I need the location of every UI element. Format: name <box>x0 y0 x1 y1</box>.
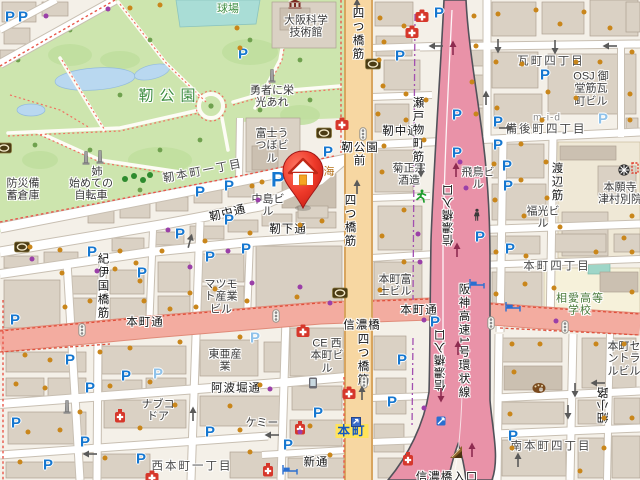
street-honmachidori-w: 本町通 <box>126 317 164 330</box>
poi-dot-purple <box>95 269 100 274</box>
signal-icon <box>487 316 495 330</box>
poi-dot-orange <box>472 14 477 19</box>
oneway-arrow-icon <box>602 42 618 50</box>
oneway-arrow-icon <box>494 38 502 54</box>
parking-icon: P <box>387 395 397 410</box>
hospital-icon <box>405 25 420 39</box>
bed-icon <box>505 302 522 313</box>
street-setomonocho-suji: 瀬戸物町筋 <box>411 96 424 164</box>
parking-icon: P <box>43 458 53 473</box>
poi-dot-orange <box>523 282 528 287</box>
poi-dot-orange <box>494 60 499 65</box>
bldg-toa: 東亜産 業 <box>209 349 242 374</box>
poi-dot-orange <box>494 292 499 297</box>
poi-dot-orange <box>23 353 28 358</box>
monument-icon <box>63 400 72 415</box>
poi-dot-orange <box>382 144 387 149</box>
parking-icon-light: P <box>153 367 163 382</box>
oneway-arrow-icon <box>449 40 457 56</box>
poi-dot-orange <box>404 118 409 123</box>
poi-dot-purple <box>298 285 303 290</box>
poi-dot-orange <box>402 24 407 29</box>
poi-dot-orange <box>18 460 23 465</box>
poi-dot-orange <box>524 254 529 259</box>
oneway-arrow-icon <box>498 124 514 132</box>
poi-dot-purple <box>554 319 559 324</box>
poi-dot-orange <box>492 162 497 167</box>
pharmacy-icon <box>114 409 126 423</box>
poi-dot-orange <box>470 80 475 85</box>
poi-dot-orange <box>138 426 143 431</box>
street-watanabesuji: 渡辺筋 <box>550 162 563 203</box>
person-icon <box>473 209 482 222</box>
poi-dot-orange <box>258 383 263 388</box>
poi-dot-orange <box>558 225 563 230</box>
district-minamihonmachi: 南本町四丁目 <box>511 441 592 454</box>
parking-icon: P <box>121 369 131 384</box>
bldg-honmachi-fuji: 本町富 士ビル <box>379 274 412 299</box>
monument-icon <box>82 151 91 166</box>
poi-dot-orange <box>628 118 633 123</box>
poi-dot-orange <box>622 236 627 241</box>
poi-dot-orange <box>48 358 53 363</box>
poi-dot-orange <box>582 10 587 15</box>
parking-icon: P <box>452 146 462 161</box>
parking-icon: P <box>80 435 90 450</box>
poi-dot-orange <box>630 416 635 421</box>
district-bingomachi: 備後町四丁目 <box>506 124 587 137</box>
poi-dot-orange <box>522 214 527 219</box>
poi-dot-orange <box>308 424 313 429</box>
poi-dot-orange <box>474 112 479 117</box>
poi-dot-purple <box>226 249 231 254</box>
bldg-fukumitsu: 福光ビ ル <box>527 206 560 231</box>
poi-dot-orange <box>98 350 103 355</box>
oneway-arrow-icon <box>437 387 445 403</box>
street-yotsubashisuji-mid: 四つ橋筋 <box>343 194 356 248</box>
street-yotsubashisuji-top: 四つ橋筋 <box>351 7 364 61</box>
map-canvas[interactable]: 靭公園球場大阪科学 技術館勇者に栄 光あれ姉始めての 自転車防災備 蓄倉庫靭本町… <box>0 0 640 480</box>
poi-honganji: 本願寺 津村別院 <box>598 182 640 207</box>
street-shintori: 新通 <box>304 457 329 470</box>
poi-dot-orange <box>245 299 250 304</box>
parking-icon: P <box>224 179 234 194</box>
poi-dot-orange <box>108 384 113 389</box>
poi-dot-orange <box>630 290 635 295</box>
phone-icon <box>309 377 318 389</box>
poi-dot-purple <box>268 387 273 392</box>
signal-icon <box>359 127 367 141</box>
parking-icon-light: P <box>250 331 260 346</box>
oneway-arrow-icon <box>82 450 98 458</box>
oneway-arrow-icon <box>590 379 606 387</box>
parking-icon: P <box>136 452 146 467</box>
hospital-icon <box>415 9 430 23</box>
museum-label: 大阪科学 技術館 <box>284 15 328 40</box>
poi-dot-orange <box>376 112 381 117</box>
hospital-icon <box>296 324 311 338</box>
poi-dot-purple <box>418 260 423 265</box>
hospital-icon <box>342 386 357 400</box>
parking-icon: P <box>241 242 251 257</box>
poi-dot-orange <box>295 295 300 300</box>
bed-icon <box>282 465 299 476</box>
ramp-shinanobashi-3: 信濃橋入口 <box>416 472 479 480</box>
poi-dot-orange <box>538 342 543 347</box>
poi-dot-orange <box>519 142 524 147</box>
poi-dot-orange <box>128 346 133 351</box>
parking-icon: P <box>18 10 28 25</box>
poi-dot-orange <box>574 96 579 101</box>
poi-dot-orange <box>382 40 387 45</box>
poi-dot-orange <box>519 178 524 183</box>
poi-dot-orange <box>88 299 93 304</box>
parking-icon: P <box>397 353 407 368</box>
poi-dot-orange <box>602 446 607 451</box>
ballfield-label: 球場 <box>217 3 239 15</box>
poi-dot-orange <box>138 279 143 284</box>
parking-icon: P <box>10 313 20 328</box>
subway-icon <box>351 417 361 427</box>
parking-icon-light: P <box>598 112 608 127</box>
poi-dot-orange <box>494 250 499 255</box>
poi-dot-orange <box>402 208 407 213</box>
poi-dot-orange <box>510 446 515 451</box>
poi-dot-orange <box>134 261 139 266</box>
poi-dot-orange <box>142 299 147 304</box>
school-soai: 相愛高等 学校 <box>556 293 604 318</box>
oneway-arrow-icon <box>514 452 522 468</box>
poi-dot-orange <box>328 453 333 458</box>
parking-icon: P <box>175 227 185 242</box>
poi-dot-orange <box>598 60 603 65</box>
parking-icon: P <box>452 108 462 123</box>
poi-dot-orange <box>512 370 517 375</box>
monument-icon <box>96 150 105 165</box>
poi-dot-orange <box>474 44 479 49</box>
poi-dot-orange <box>203 239 208 244</box>
poi-dot-orange <box>238 46 243 51</box>
oneway-arrow-icon <box>482 90 490 106</box>
poi-dot-orange <box>58 428 63 433</box>
poi-dot-orange <box>128 6 133 11</box>
bldg-osj-midosuji: OSJ 御 堂筋瓦 町ビル <box>573 71 608 108</box>
palette-icon <box>532 383 546 394</box>
parking-icon: P <box>11 416 21 431</box>
parking-icon: P <box>503 179 513 194</box>
poi-dot-orange <box>178 340 183 345</box>
poi-dot-purple <box>250 281 255 286</box>
parking-icon: P <box>313 406 323 421</box>
poi-dot-orange <box>578 469 583 474</box>
parking-icon: P <box>5 10 15 25</box>
signal-icon <box>272 309 280 323</box>
poi-dot-orange <box>58 248 63 253</box>
parking-icon: P <box>434 6 444 21</box>
poi-dot-purple <box>256 198 261 203</box>
ramp-shinanobashi-2: 信濃橋入口 <box>435 329 448 392</box>
poi-dot-orange <box>26 430 31 435</box>
poi-dot-orange <box>630 214 635 219</box>
bosai-label: 防災備 蓄倉庫 <box>7 178 40 203</box>
oneway-arrow-icon <box>452 162 460 178</box>
parking-icon: P <box>508 429 518 444</box>
redsq-icon <box>631 162 639 174</box>
poi-dot-orange <box>238 428 243 433</box>
poi-dot-orange <box>422 138 427 143</box>
poi-dot-orange <box>630 250 635 255</box>
parking-icon: P <box>85 381 95 396</box>
ramp-shinanobashi-1: 信濃橋入口 <box>443 184 456 247</box>
poi-dot-orange <box>248 231 253 236</box>
poi-dot-orange <box>540 118 545 123</box>
poi-dot-orange <box>158 3 163 8</box>
poi-dot-orange <box>248 450 253 455</box>
poi-dot-orange <box>608 26 613 31</box>
poi-dot-orange <box>552 286 557 291</box>
poi-dot-orange <box>508 412 513 417</box>
parking-icon: P <box>283 438 293 453</box>
oneway-arrow-icon <box>353 179 361 195</box>
poi-dot-purple <box>422 406 427 411</box>
bldg-nabco: ナブコ ドア <box>142 399 175 424</box>
poi-dot-orange <box>558 22 563 27</box>
poi-dot-purple <box>298 430 303 435</box>
poi-dot-orange <box>377 58 382 63</box>
monument-label-jitensha: 始めての 自転車 <box>69 178 113 203</box>
poi-dot-orange <box>424 98 429 103</box>
parking-icon: P <box>205 250 215 265</box>
poi-dot-orange <box>402 260 407 265</box>
poi-dot-orange <box>173 403 178 408</box>
poi-dot-purple <box>106 7 111 12</box>
poi-dot-orange <box>238 335 243 340</box>
poi-dot-orange <box>298 223 303 228</box>
oneway-arrow-icon <box>358 385 366 401</box>
poi-dot-orange <box>594 342 599 347</box>
poi-dot-orange <box>78 410 83 415</box>
poi-dot-orange <box>188 291 193 296</box>
district-honmachi4: 本町四丁目 <box>523 261 591 274</box>
signal-icon <box>561 320 569 334</box>
parking-icon: P <box>505 242 515 257</box>
poi-dot-orange <box>510 342 515 347</box>
poi-dot-orange <box>380 170 385 175</box>
signal-icon <box>78 323 86 337</box>
parking-icon: P <box>87 245 97 260</box>
runner-icon <box>415 189 427 203</box>
bldg-matsumoto: マツモ ト産業 ビル <box>205 279 238 316</box>
bed-icon <box>469 279 486 290</box>
poi-dot-orange <box>213 287 218 292</box>
poi-dot-purple <box>416 232 421 237</box>
bldg-ce-nishihonmachi: CE 西 本町ビ ル <box>311 338 344 375</box>
poi-dot-orange <box>14 382 19 387</box>
poi-dot-orange <box>404 92 409 97</box>
poi-dot-orange <box>378 16 383 21</box>
poi-dot-orange <box>228 404 233 409</box>
intersection-utsubokoenmae: 靭公園 前 <box>341 142 379 168</box>
street-awahoridori: 阿波堀通 <box>211 383 261 396</box>
bike-icon <box>436 416 446 426</box>
oneway-arrow-icon <box>551 39 559 55</box>
poi-dot-orange <box>493 198 498 203</box>
parking-icon: P <box>205 425 215 440</box>
bank-icon <box>316 128 332 139</box>
parking-icon: P <box>430 315 440 330</box>
poi-dot-orange <box>574 60 579 65</box>
bldg-mid: m-i-d <box>533 112 561 123</box>
poi-dot-orange <box>168 307 173 312</box>
poi-dot-orange <box>60 271 65 276</box>
poi-dot-orange <box>546 90 551 95</box>
bank-icon <box>0 143 12 154</box>
poi-dot-orange <box>378 288 383 293</box>
poi-dot-orange <box>148 380 153 385</box>
oneway-arrow-icon <box>571 382 579 398</box>
poi-dot-orange <box>544 160 549 165</box>
parking-icon: P <box>502 159 512 174</box>
hospital-icon <box>145 470 160 480</box>
oneway-arrow-icon <box>454 340 462 356</box>
slope-icon <box>450 446 462 458</box>
parking-icon: P <box>395 49 405 64</box>
parking-icon: P <box>540 68 550 83</box>
parking-icon: P <box>224 213 234 228</box>
poi-dot-orange <box>520 62 525 67</box>
poi-dot-orange <box>320 219 325 224</box>
parking-icon: P <box>65 353 75 368</box>
pharmacy-icon <box>262 463 274 477</box>
poi-dot-orange <box>235 26 240 31</box>
poi-dot-purple <box>166 228 171 233</box>
bank-icon <box>332 288 348 299</box>
oneway-arrow-icon <box>428 42 444 50</box>
poi-dot-orange <box>103 456 108 461</box>
home-marker-pin[interactable] <box>281 150 325 212</box>
poi-dot-orange <box>380 234 385 239</box>
poi-dot-orange <box>381 84 386 89</box>
monument-label-yusha: 勇者に栄 光あれ <box>250 85 294 110</box>
poi-dot-purple <box>328 301 333 306</box>
poi-dot-orange <box>113 267 118 272</box>
monument-label-ane: 姉 <box>92 166 103 178</box>
poi-dot-orange <box>160 249 165 254</box>
parking-icon: P <box>493 138 503 153</box>
park-name: 靭公園 <box>138 89 201 106</box>
poi-dot-orange <box>63 305 68 310</box>
bldg-chemi: ケミー <box>246 417 279 429</box>
oneway-arrow-icon <box>264 431 280 439</box>
poi-dot-orange <box>495 106 500 111</box>
pharmacy-icon <box>402 452 414 466</box>
poi-dot-purple <box>188 265 193 270</box>
poi-dot-orange <box>28 245 33 250</box>
poi-dot-orange <box>43 386 48 391</box>
poi-dot-orange <box>545 196 550 201</box>
temple-icon <box>618 164 631 177</box>
poi-dot-orange <box>534 8 539 13</box>
poi-dot-orange <box>118 249 123 254</box>
poi-dot-purple <box>44 14 49 19</box>
oneway-arrow-icon <box>417 162 425 178</box>
parking-icon: P <box>475 230 485 245</box>
poi-dot-purple <box>464 186 469 191</box>
poi-dot-orange <box>260 180 265 185</box>
street-kiinokunibashisuji: 紀伊国橋筋 <box>96 252 109 320</box>
poi-dot-orange <box>194 305 199 310</box>
poi-dot-purple <box>422 318 427 323</box>
poi-dot-orange <box>250 184 255 189</box>
oneway-arrow-icon <box>453 242 461 258</box>
poi-partial-umi: 海 <box>324 166 335 178</box>
poi-dot-orange <box>602 416 607 421</box>
oneway-arrow-icon <box>564 404 572 420</box>
oneway-arrow-icon <box>189 406 197 422</box>
poi-dot-purple <box>30 257 35 262</box>
monument-icon <box>268 69 277 84</box>
poi-dot-orange <box>496 12 501 17</box>
oneway-arrow-icon <box>468 442 476 458</box>
poi-dot-orange <box>594 250 599 255</box>
intersection-shinanobashi: 信濃橋 <box>343 320 381 333</box>
poi-dot-orange <box>628 92 633 97</box>
oneway-arrow-icon <box>353 0 361 14</box>
poi-dot-orange <box>622 342 627 347</box>
district-nishihonmachi: 西本町一丁目 <box>152 461 233 474</box>
poi-dot-orange <box>630 50 635 55</box>
hospital-icon <box>335 117 350 131</box>
museum-icon <box>289 0 302 9</box>
parking-icon: P <box>195 185 205 200</box>
